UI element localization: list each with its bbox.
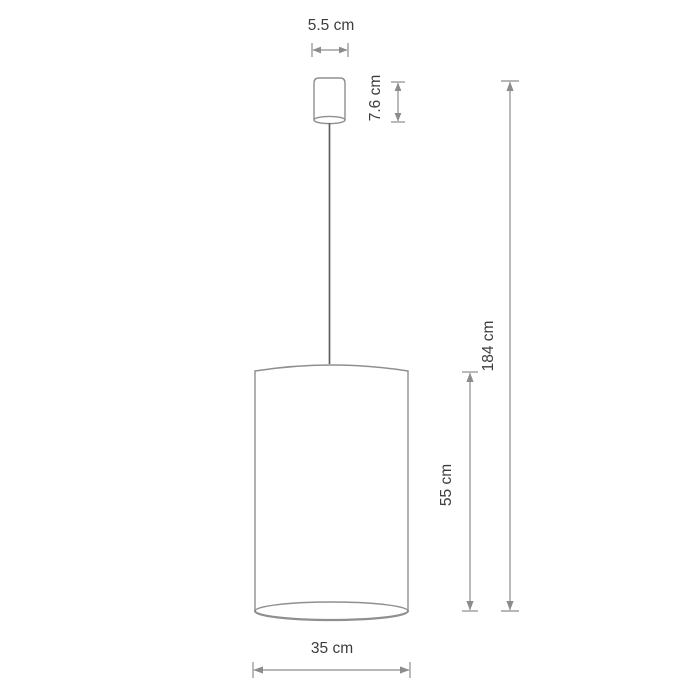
arrowhead-down-icon bbox=[506, 601, 513, 611]
dim-canopy-width: 5.5 cm bbox=[308, 17, 355, 57]
overall-height-label: 184 cm bbox=[480, 321, 497, 372]
shade-top-edge bbox=[255, 365, 408, 371]
canopy-bottom-rim bbox=[314, 116, 345, 123]
canopy-height-label: 7.6 cm bbox=[367, 75, 384, 122]
arrowhead-left-icon bbox=[313, 47, 322, 54]
diagram-svg: 5.5 cm 7.6 cm bbox=[0, 0, 700, 700]
arrowhead-up-icon bbox=[506, 82, 513, 92]
canopy-width-label: 5.5 cm bbox=[308, 17, 355, 34]
shade-bottom-rim-front bbox=[255, 611, 408, 620]
lamp-dimension-diagram: 5.5 cm 7.6 cm bbox=[0, 0, 700, 700]
shade-height-label: 55 cm bbox=[438, 464, 455, 506]
dim-canopy-height: 7.6 cm bbox=[367, 75, 405, 122]
arrowhead-right-icon bbox=[400, 666, 410, 673]
canopy bbox=[314, 78, 345, 124]
arrowhead-up-icon bbox=[395, 83, 402, 92]
dim-shade-diameter: 35 cm bbox=[253, 640, 410, 678]
shade bbox=[255, 365, 408, 620]
arrowhead-down-icon bbox=[466, 601, 473, 611]
arrowhead-up-icon bbox=[466, 373, 473, 383]
dim-shade-height: 55 cm bbox=[438, 372, 478, 611]
arrowhead-down-icon bbox=[395, 113, 402, 122]
dim-overall-height: 184 cm bbox=[480, 81, 519, 611]
arrowhead-right-icon bbox=[339, 47, 348, 54]
arrowhead-left-icon bbox=[254, 666, 264, 673]
shade-diameter-label: 35 cm bbox=[311, 640, 353, 657]
canopy-body bbox=[314, 78, 345, 120]
